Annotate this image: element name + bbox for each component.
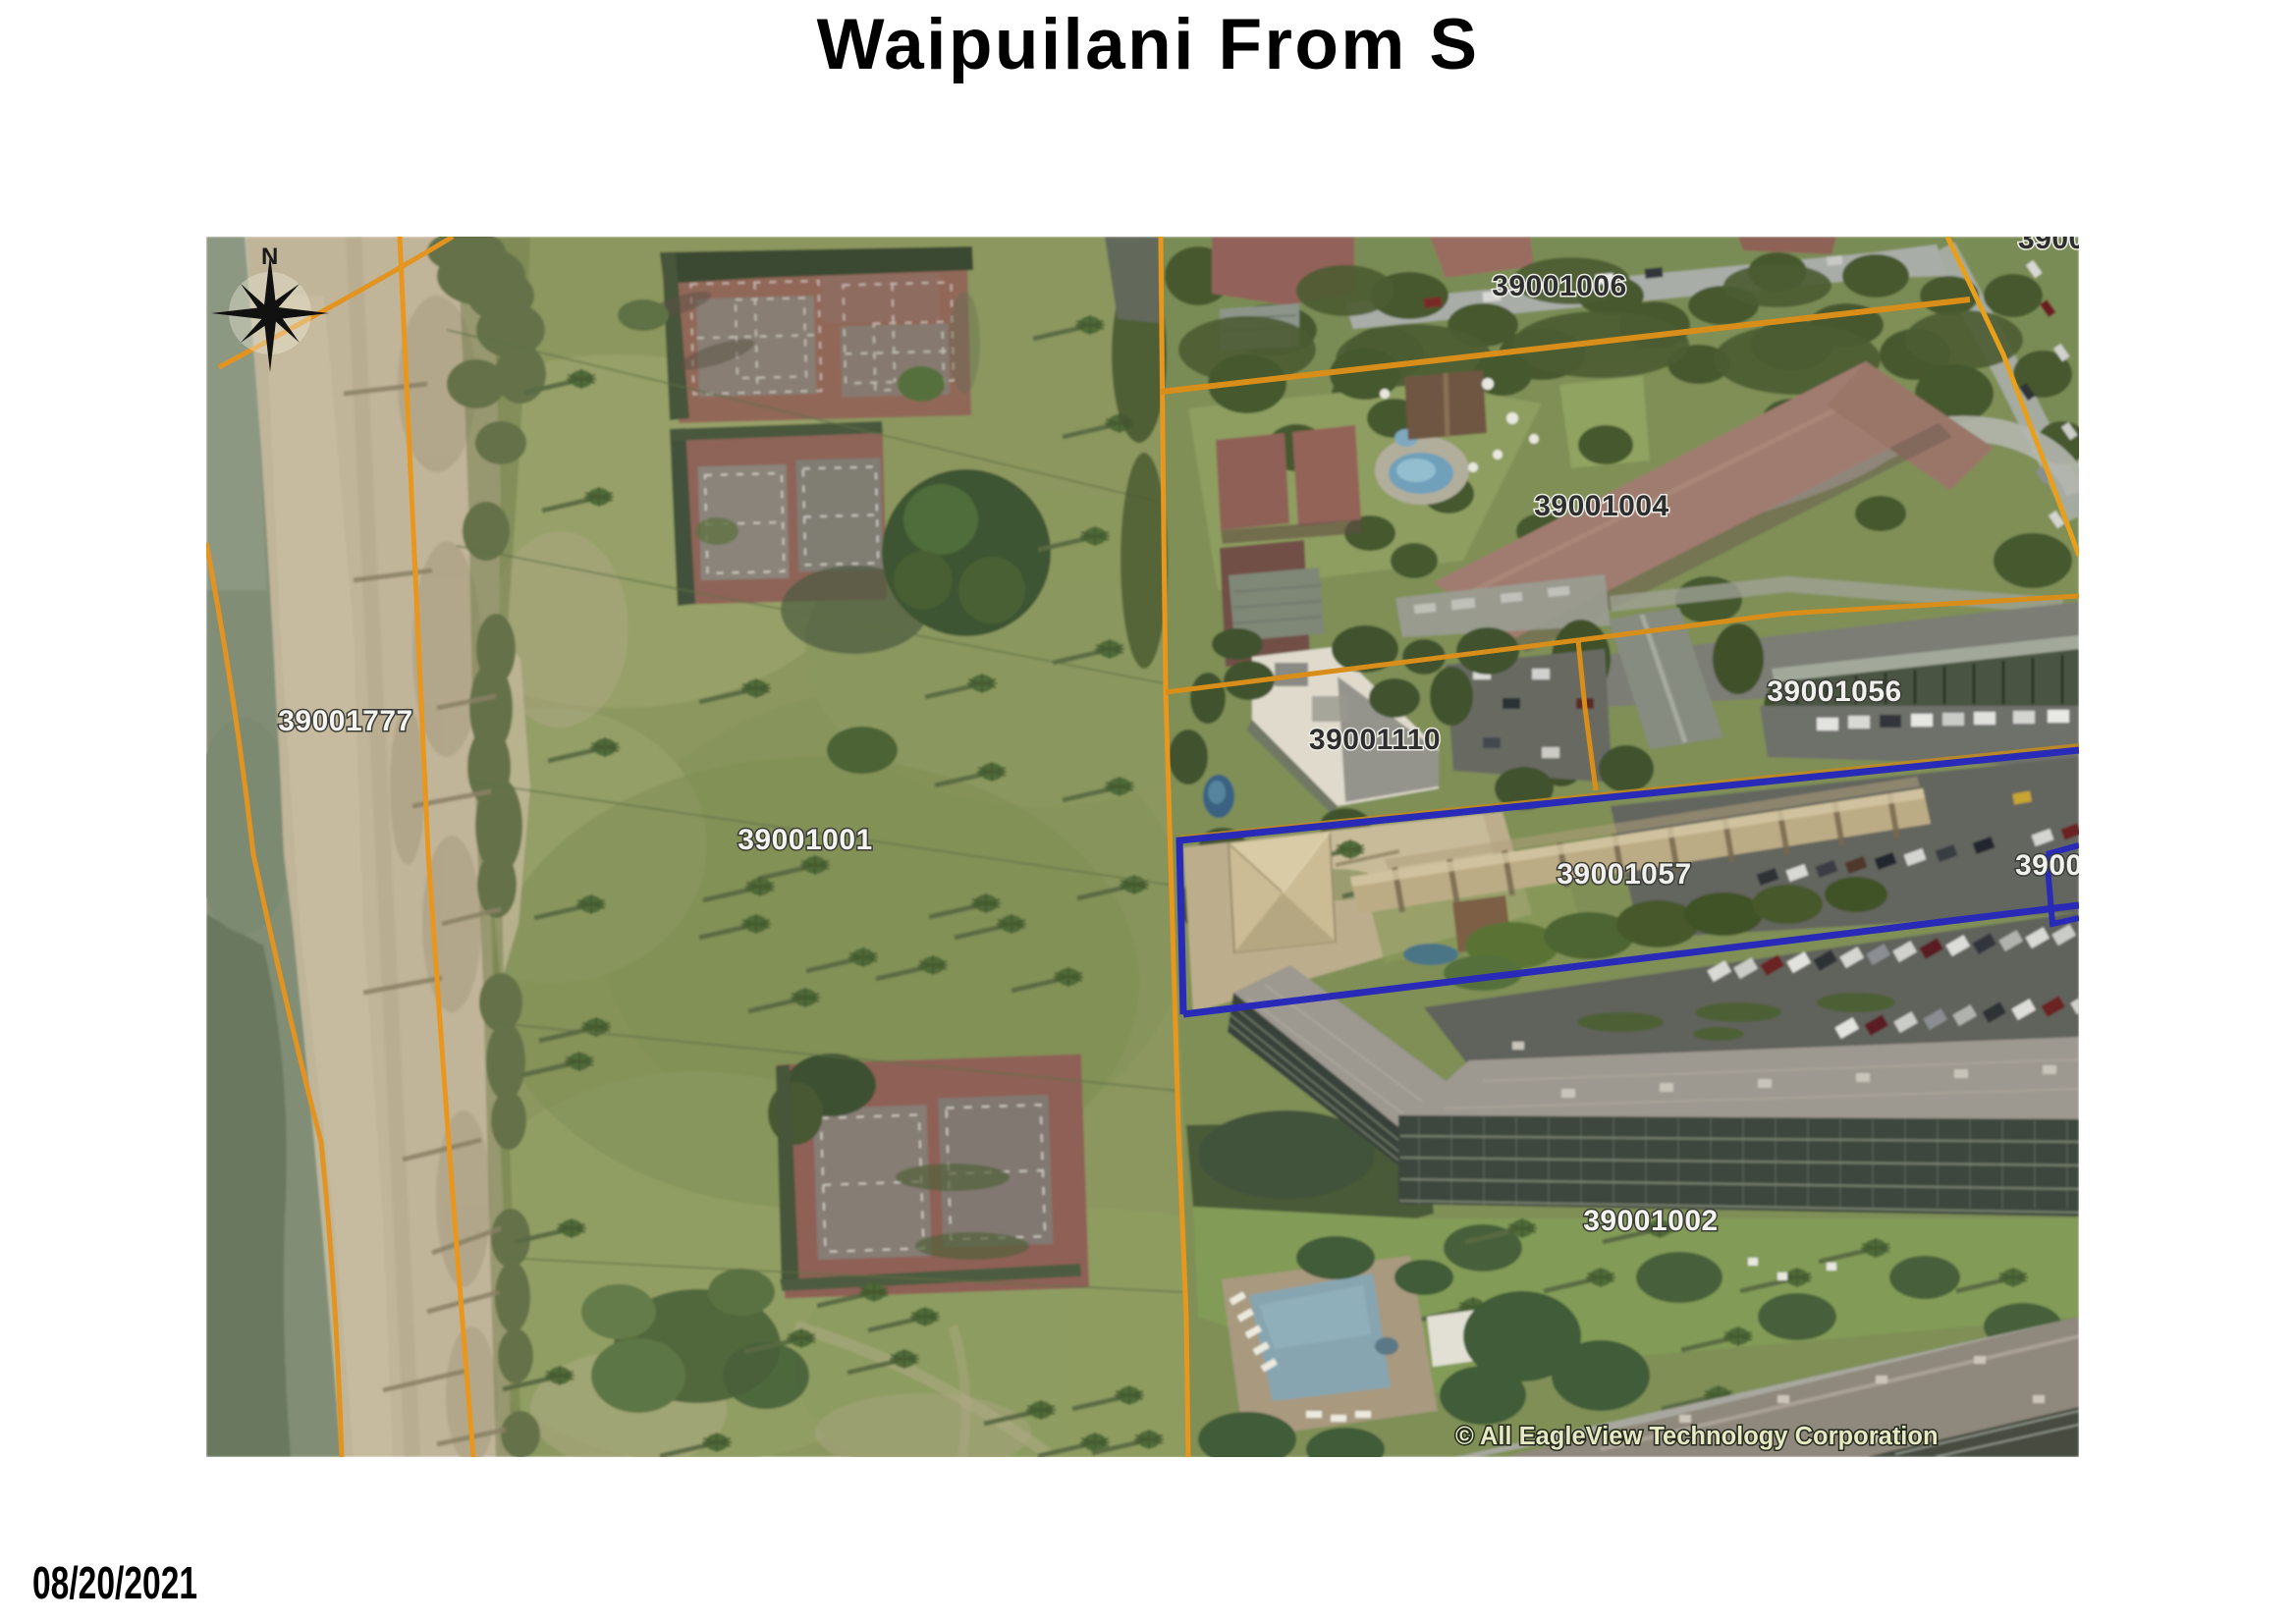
svg-text:39001002: 39001002 (1583, 1205, 1718, 1237)
svg-text:3900: 3900 (2018, 237, 2079, 255)
svg-text:39001004: 39001004 (1534, 490, 1668, 522)
svg-text:© All EagleView Technology Cor: © All EagleView Technology Corporation (1455, 1423, 1939, 1450)
svg-text:39001057: 39001057 (1557, 858, 1691, 891)
svg-text:N: N (261, 243, 278, 270)
svg-text:39001777: 39001777 (278, 705, 412, 737)
svg-text:39001110: 39001110 (1309, 724, 1441, 756)
svg-text:39001006: 39001006 (1492, 270, 1626, 302)
svg-text:39001001: 39001001 (738, 824, 872, 856)
svg-text:3900: 3900 (2015, 849, 2079, 882)
svg-text:39001056: 39001056 (1767, 676, 1901, 708)
